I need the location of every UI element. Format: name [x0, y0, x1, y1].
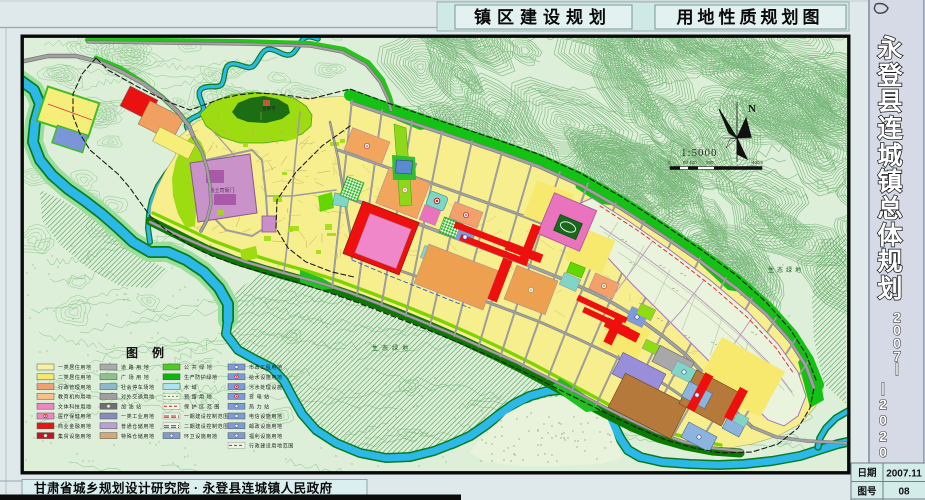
svg-text:教育机构用地: 教育机构用地	[58, 394, 92, 401]
svg-text:污水处理设施: 污水处理设施	[249, 384, 283, 391]
svg-text:二期建设控制范围: 二期建设控制范围	[184, 423, 229, 430]
svg-text:登: 登	[876, 61, 903, 90]
svg-text:2: 2	[879, 428, 887, 444]
svg-text:加 油 站: 加 油 站	[121, 403, 142, 410]
svg-text:生态绿地: 生态绿地	[372, 344, 412, 352]
svg-text:0: 0	[879, 444, 887, 460]
svg-text:一期建设控制范围: 一期建设控制范围	[184, 413, 229, 420]
svg-text:体: 体	[877, 222, 903, 250]
svg-text:镇: 镇	[877, 168, 902, 196]
svg-text:一类居住用地: 一类居住用地	[58, 364, 92, 371]
svg-text:给水设施用地: 给水设施用地	[249, 374, 283, 381]
svg-text:对外交通用地: 对外交通用地	[121, 394, 155, 401]
svg-text:2: 2	[879, 396, 887, 412]
svg-text:环卫设施用地: 环卫设施用地	[184, 433, 218, 440]
svg-text:连: 连	[877, 115, 903, 143]
svg-text:保 护 区 范 围: 保 护 区 范 围	[184, 403, 220, 410]
svg-text:福利设施用地: 福利设施用地	[249, 433, 283, 440]
svg-text:广 场 用 地: 广 场 用 地	[121, 374, 149, 381]
svg-text:商业金融用地: 商业金融用地	[58, 423, 92, 430]
svg-text:特殊仓储用地: 特殊仓储用地	[121, 433, 155, 440]
svg-text:生态绿地: 生态绿地	[768, 266, 804, 274]
svg-text:公 共 绿 地: 公 共 绿 地	[184, 364, 212, 371]
svg-text:2007.11: 2007.11	[886, 469, 922, 480]
svg-text:08: 08	[898, 487, 910, 498]
svg-text:鲁土司衙门: 鲁土司衙门	[209, 187, 234, 194]
svg-text:水 域: 水 域	[184, 384, 197, 391]
svg-text:集贸设施用地: 集贸设施用地	[58, 433, 92, 440]
svg-text:0: 0	[879, 412, 887, 428]
svg-text:县: 县	[877, 88, 902, 116]
svg-text:生产防护绿地: 生产防护绿地	[184, 374, 218, 381]
svg-text:划: 划	[877, 275, 902, 303]
svg-text:热 力 站: 热 力 站	[249, 403, 270, 410]
svg-text:用地性质规划图: 用地性质规划图	[677, 7, 824, 27]
svg-text:400m: 400m	[752, 160, 764, 165]
svg-text:邮政设施用地: 邮政设施用地	[249, 423, 283, 430]
svg-text:行政管理用地: 行政管理用地	[58, 384, 92, 391]
svg-text:普通仓储用地: 普通仓储用地	[121, 423, 155, 430]
svg-text:变 电 站: 变 电 站	[249, 394, 270, 401]
svg-text:丨: 丨	[876, 382, 889, 397]
svg-text:图号: 图号	[857, 487, 877, 498]
svg-text:医疗保健用地: 医疗保健用地	[58, 413, 92, 420]
svg-text:行政建设用地范围: 行政建设用地范围	[249, 443, 294, 450]
svg-text:市政工程用地: 市政工程用地	[249, 364, 283, 371]
svg-text:1:5000: 1:5000	[681, 147, 718, 159]
svg-text:永: 永	[877, 35, 902, 63]
svg-text:预 留 用 地: 预 留 用 地	[184, 394, 212, 401]
svg-text:道 路 用 地: 道 路 用 地	[121, 364, 149, 371]
svg-text:文体科技用地: 文体科技用地	[58, 403, 92, 410]
svg-text:城: 城	[877, 142, 902, 170]
svg-text:图例: 图例	[126, 345, 178, 360]
svg-text:镇区建设规划: 镇区建设规划	[474, 7, 612, 27]
svg-text:规: 规	[877, 248, 902, 276]
svg-text:电信设施用地: 电信设施用地	[249, 413, 283, 420]
svg-text:总: 总	[877, 195, 902, 223]
svg-text:二类居住用地: 二类居住用地	[58, 374, 92, 381]
svg-text:50 100: 50 100	[683, 160, 697, 165]
svg-text:日期: 日期	[857, 467, 876, 479]
svg-text:一类工业用地: 一类工业用地	[121, 413, 155, 420]
svg-text:显教寺: 显教寺	[262, 105, 276, 112]
svg-text:社会停车场地: 社会停车场地	[121, 384, 155, 391]
svg-text:N: N	[748, 103, 756, 115]
svg-text:200: 200	[706, 160, 714, 165]
svg-text:丨: 丨	[890, 362, 903, 377]
svg-text:甘肃省城乡规划设计研究院 · 永登县连城镇人民政府: 甘肃省城乡规划设计研究院 · 永登县连城镇人民政府	[34, 481, 333, 496]
